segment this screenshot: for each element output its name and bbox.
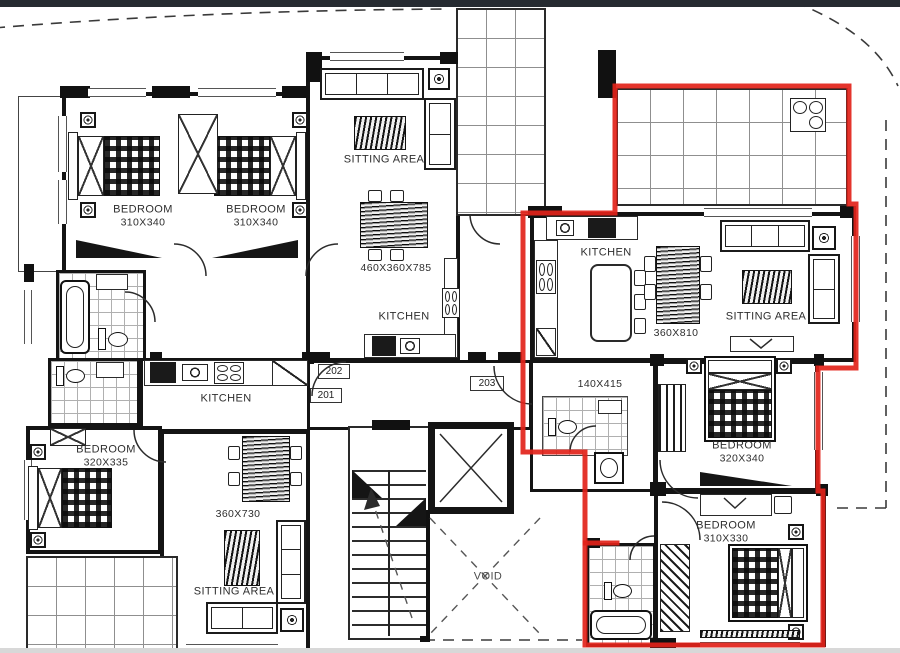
bathroom-sink (598, 400, 622, 414)
nightstand (30, 444, 46, 460)
dining-table (242, 436, 290, 502)
toilet (108, 332, 128, 347)
window (58, 116, 67, 172)
wall-pier (24, 264, 34, 282)
floor-plan: BEDROOM310X340 BEDROOM310X340 SITTING AR… (0, 0, 900, 653)
nightstand (30, 532, 46, 548)
unit-202-tag: 202 (318, 364, 350, 379)
kitchen-appliance (588, 218, 616, 238)
bed-headboard (68, 132, 78, 200)
dining-table (360, 202, 428, 248)
bathroom-sink (96, 362, 124, 378)
dining-chair (290, 472, 302, 486)
washing-machine (594, 452, 624, 484)
room-label: KITCHEN (200, 393, 251, 406)
nightstand (80, 112, 96, 128)
toilet (66, 369, 85, 383)
dining-chair (228, 446, 240, 460)
cooktop (214, 362, 244, 384)
bathtub (590, 610, 652, 640)
wall-pier (468, 352, 486, 362)
bed (732, 548, 778, 618)
dining-chair (228, 472, 240, 486)
kitchen-island (590, 264, 632, 342)
dining-chair (700, 284, 712, 300)
cooktop (536, 260, 556, 294)
room-label: BEDROOM320X335 (76, 443, 136, 468)
room-label: BEDROOM320X340 (712, 439, 772, 464)
bed (62, 468, 112, 528)
bed-headboard (792, 548, 804, 618)
bed (708, 390, 772, 438)
dining-chair (644, 284, 656, 300)
dining-chair (368, 249, 382, 261)
room-label: KITCHEN (378, 311, 429, 324)
corner-cabinet (536, 328, 556, 356)
room-label: BEDROOM310X330 (696, 519, 756, 544)
kitchen-appliance (372, 336, 396, 356)
room-label: SITTING AREA (344, 154, 425, 167)
nightstand (686, 358, 702, 374)
wardrobe (660, 544, 690, 632)
armchair (808, 254, 840, 324)
rug (224, 530, 260, 586)
stool (634, 318, 646, 334)
cooktop (442, 288, 460, 318)
bed-headboard (296, 132, 306, 200)
bed-pillows (38, 468, 62, 528)
bed-pillows (270, 136, 296, 196)
stair-divider (388, 470, 390, 636)
room-label: BEDROOM310X340 (113, 203, 173, 228)
wall-pier (152, 86, 190, 98)
terrace-grill (790, 98, 826, 132)
wall-pier (282, 86, 310, 98)
window (198, 88, 276, 97)
room-label: SITTING AREA (194, 586, 275, 599)
room-label: SITTING AREA (726, 311, 807, 324)
bed-pillows (78, 136, 104, 196)
dimension-label: 140X415 (578, 378, 623, 390)
window (814, 372, 823, 450)
wall-pier (372, 420, 410, 430)
window (24, 290, 32, 344)
wall-pier (814, 354, 824, 366)
kitchen-sink (400, 338, 420, 354)
room-label: BEDROOM310X340 (226, 203, 286, 228)
sofa (720, 220, 810, 252)
unit-203-tag: 203 (470, 376, 504, 391)
window (58, 180, 67, 224)
top-edge-bar (0, 0, 900, 7)
dining-chair (368, 190, 382, 202)
bed (104, 136, 160, 196)
room-label: VOID (474, 571, 503, 584)
dining-chair (644, 256, 656, 272)
bathtub (60, 280, 90, 354)
wall-pier (440, 52, 458, 64)
side-table-lamp (428, 68, 450, 90)
kitchen-appliance (150, 362, 176, 383)
sofa (206, 602, 278, 634)
sofa (320, 68, 424, 100)
dimension-label: 460X360X785 (361, 262, 432, 274)
wall-pier (650, 482, 666, 496)
dining-chair (290, 446, 302, 460)
wall-pier (840, 206, 856, 218)
toilet (558, 420, 577, 434)
dimension-label: 360X810 (654, 327, 699, 339)
rug (742, 270, 792, 304)
unit-201-tag: 201 (310, 388, 342, 403)
dimension-label: 360X730 (216, 508, 261, 520)
window (330, 52, 404, 61)
veranda-tiled (456, 8, 546, 216)
side-table-lamp (280, 608, 304, 632)
bathroom-sink (96, 274, 128, 290)
dining-chair (700, 256, 712, 272)
balcony-bottom-left (26, 556, 178, 650)
wall-pier (816, 484, 828, 496)
side-table-lamp (812, 226, 836, 250)
wardrobe (658, 384, 686, 452)
window (704, 208, 812, 217)
toilet-tank (548, 418, 556, 436)
bottom-edge-bar (0, 648, 900, 653)
rug (354, 116, 406, 150)
wall-pier (60, 86, 90, 98)
nightstand (788, 524, 804, 540)
corner-cabinet (272, 360, 308, 386)
bed-pillow-fan (778, 548, 792, 618)
bench (700, 494, 772, 516)
wall-pier (598, 50, 616, 98)
tv-stand (730, 336, 794, 352)
elevator (428, 422, 514, 514)
toilet-tank (604, 582, 612, 600)
wall-pier (498, 352, 522, 362)
rug (700, 630, 800, 638)
window (851, 236, 860, 322)
sofa (276, 520, 306, 604)
dining-chair (390, 249, 404, 261)
nightstand (80, 202, 96, 218)
kitchen-sink (556, 220, 574, 236)
bed (214, 136, 270, 196)
dining-chair (390, 190, 404, 202)
armchair (424, 98, 456, 170)
kitchen-sink (182, 364, 208, 381)
wardrobe (178, 114, 218, 194)
nightstand (292, 112, 308, 128)
toilet-tank (56, 366, 64, 386)
dining-table (656, 246, 700, 324)
toilet-tank (98, 328, 106, 350)
side-box (774, 496, 792, 514)
toilet (613, 584, 632, 598)
window (88, 88, 146, 97)
bed-pillows (708, 360, 772, 373)
wall-pier (586, 538, 600, 548)
bed-pillow-fan (708, 373, 772, 390)
bed-headboard (28, 466, 38, 530)
nightstand (292, 202, 308, 218)
nightstand (776, 358, 792, 374)
wall-pier (650, 354, 664, 366)
room-label: KITCHEN (580, 247, 631, 260)
